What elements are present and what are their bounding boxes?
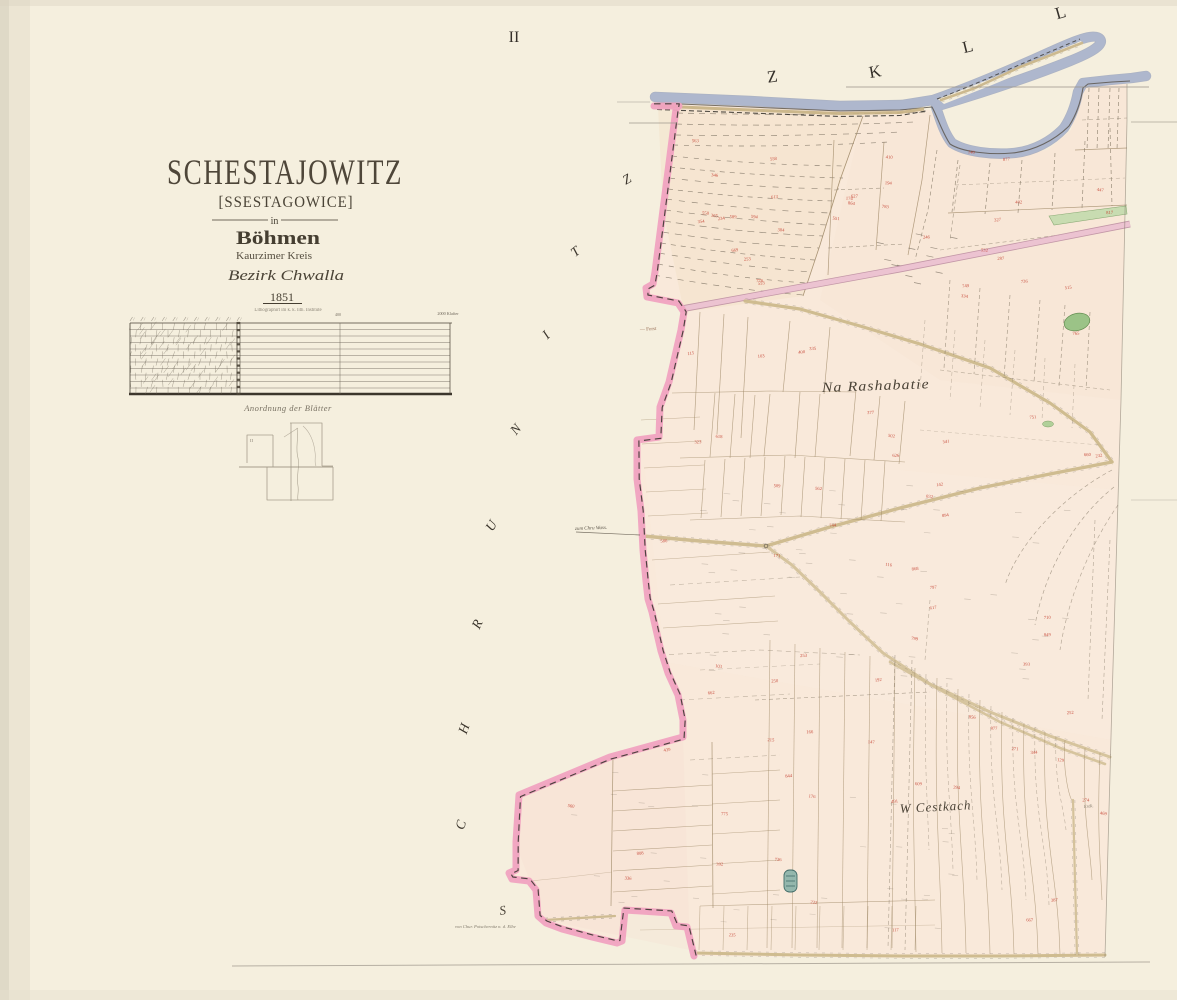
svg-text:II: II xyxy=(250,438,253,443)
svg-text:400: 400 xyxy=(335,312,341,317)
svg-text:235: 235 xyxy=(729,932,737,937)
svg-text:877: 877 xyxy=(1003,156,1011,162)
svg-text:von Chur. Potschernitz n. d. E: von Chur. Potschernitz n. d. Elbe xyxy=(455,924,516,929)
svg-text:856: 856 xyxy=(969,714,977,719)
svg-text:509: 509 xyxy=(774,483,782,488)
svg-text:609: 609 xyxy=(915,781,923,786)
svg-text:377: 377 xyxy=(867,410,875,415)
svg-text:287: 287 xyxy=(997,256,1005,261)
svg-text:234: 234 xyxy=(718,215,726,221)
svg-text:551: 551 xyxy=(832,216,840,221)
svg-text:541: 541 xyxy=(942,439,950,445)
svg-text:250: 250 xyxy=(771,678,779,683)
svg-text:222: 222 xyxy=(810,899,818,905)
svg-text:868: 868 xyxy=(911,566,919,572)
svg-text:335: 335 xyxy=(809,346,817,351)
svg-text:710: 710 xyxy=(1044,615,1052,620)
svg-text:400: 400 xyxy=(798,349,806,355)
svg-text:558: 558 xyxy=(770,156,778,162)
svg-text:562: 562 xyxy=(815,486,823,491)
svg-text:532: 532 xyxy=(981,247,989,253)
svg-text:in: in xyxy=(271,216,279,227)
svg-text:192: 192 xyxy=(875,677,883,683)
svg-text:832: 832 xyxy=(926,494,934,500)
svg-text:387: 387 xyxy=(1051,897,1059,903)
svg-text:783: 783 xyxy=(882,204,890,210)
svg-text:469: 469 xyxy=(1100,810,1108,816)
svg-text:147: 147 xyxy=(868,739,876,744)
svg-text:274: 274 xyxy=(1082,797,1090,802)
svg-text:844: 844 xyxy=(785,773,793,779)
svg-text:744: 744 xyxy=(829,522,837,528)
svg-text:140: 140 xyxy=(968,149,976,155)
svg-text:Kaurzimer Kreis: Kaurzimer Kreis xyxy=(236,251,312,262)
svg-text:II: II xyxy=(509,29,520,46)
svg-text:2000 Klafter: 2000 Klafter xyxy=(437,311,459,316)
svg-text:171: 171 xyxy=(773,553,781,559)
svg-text:553: 553 xyxy=(758,280,766,285)
svg-text:563: 563 xyxy=(692,138,700,143)
svg-text:864: 864 xyxy=(848,200,856,206)
svg-text:336: 336 xyxy=(624,875,632,880)
svg-text:176: 176 xyxy=(808,793,816,799)
svg-text:491: 491 xyxy=(891,798,899,804)
svg-text:410: 410 xyxy=(886,154,894,160)
svg-text:294: 294 xyxy=(953,785,961,791)
svg-text:346: 346 xyxy=(711,172,719,178)
svg-text:775: 775 xyxy=(721,811,729,816)
svg-text:129: 129 xyxy=(1057,757,1065,763)
svg-text:Böhmen: Böhmen xyxy=(236,228,321,249)
svg-text:354: 354 xyxy=(697,218,705,224)
svg-text:808: 808 xyxy=(636,850,644,856)
svg-text:586: 586 xyxy=(660,538,668,543)
svg-text:SCHESTAJOWITZ: SCHESTAJOWITZ xyxy=(167,152,403,192)
svg-text:117: 117 xyxy=(892,927,900,932)
svg-text:392: 392 xyxy=(716,862,724,867)
svg-text:Lithographirt im k. k. lith. I: Lithographirt im k. k. lith. Institute xyxy=(254,308,321,313)
svg-text:103: 103 xyxy=(758,353,766,358)
svg-text:194: 194 xyxy=(885,180,893,185)
svg-text:662: 662 xyxy=(708,690,716,696)
svg-text:116: 116 xyxy=(885,562,893,568)
svg-text:626: 626 xyxy=(892,453,900,458)
svg-text:215: 215 xyxy=(767,737,775,742)
svg-text:627: 627 xyxy=(851,193,859,198)
svg-text:393: 393 xyxy=(1023,662,1031,667)
svg-text:402: 402 xyxy=(1015,199,1023,204)
svg-text:877: 877 xyxy=(991,726,999,731)
svg-text:1851: 1851 xyxy=(270,290,294,304)
svg-text:765: 765 xyxy=(1072,331,1080,336)
svg-text:849: 849 xyxy=(1044,632,1052,637)
svg-text:142: 142 xyxy=(936,481,944,487)
svg-text:594: 594 xyxy=(751,214,759,220)
svg-text:327: 327 xyxy=(994,217,1002,223)
svg-text:Erdk.: Erdk. xyxy=(1083,803,1094,809)
svg-text:749: 749 xyxy=(962,283,970,289)
svg-text:797: 797 xyxy=(930,584,938,590)
svg-text:618: 618 xyxy=(715,434,723,439)
svg-text:253: 253 xyxy=(800,653,808,658)
svg-text:323: 323 xyxy=(694,439,702,444)
svg-text:Anordnung der Blätter: Anordnung der Blätter xyxy=(243,403,332,413)
svg-text:304: 304 xyxy=(777,227,785,232)
svg-text:365: 365 xyxy=(711,213,719,219)
svg-text:613: 613 xyxy=(771,194,779,200)
svg-text:253: 253 xyxy=(744,256,752,262)
svg-text:166: 166 xyxy=(806,729,814,734)
svg-text:667: 667 xyxy=(1026,917,1034,922)
svg-text:669: 669 xyxy=(731,247,739,253)
svg-text:736: 736 xyxy=(1021,278,1029,284)
svg-text:817: 817 xyxy=(1106,210,1114,215)
svg-text:246: 246 xyxy=(923,234,931,240)
svg-text:271: 271 xyxy=(1011,746,1019,751)
svg-text:344: 344 xyxy=(1030,750,1038,755)
svg-text:252: 252 xyxy=(1067,710,1075,716)
svg-text:515: 515 xyxy=(1065,284,1073,290)
svg-text:550: 550 xyxy=(702,210,710,216)
svg-text:Bezirk Chwalla: Bezirk Chwalla xyxy=(228,268,344,284)
svg-text:617: 617 xyxy=(929,605,937,611)
svg-text:589: 589 xyxy=(730,214,738,219)
svg-text:103: 103 xyxy=(715,663,723,669)
svg-text:751: 751 xyxy=(1029,414,1037,420)
svg-text:[SSESTAGOWICE]: [SSESTAGOWICE] xyxy=(219,194,354,211)
svg-text:799: 799 xyxy=(911,636,919,642)
svg-text:660: 660 xyxy=(1084,452,1092,457)
svg-text:736: 736 xyxy=(775,857,783,862)
